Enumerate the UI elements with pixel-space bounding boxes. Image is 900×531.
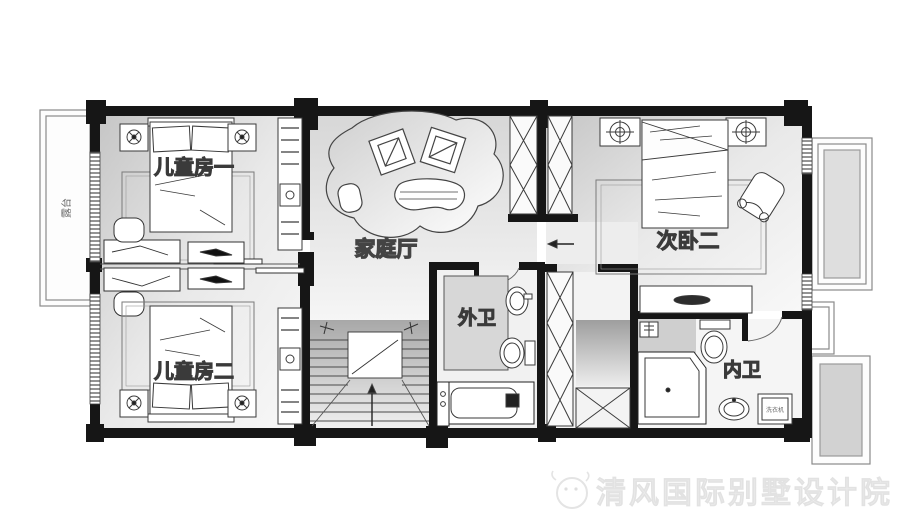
pillow: [191, 383, 229, 409]
window-right-2: [802, 274, 812, 310]
washer-label: 洗衣机: [766, 406, 784, 414]
washbasin-icon: [640, 322, 658, 337]
room-label-balcony-left: 露台: [60, 198, 73, 218]
window-left-1: [90, 152, 100, 262]
room-label-outer-bath: 外卫: [458, 306, 496, 329]
nightstand-lamp-icon: [120, 390, 148, 417]
corridor-floor: [546, 222, 638, 264]
outer-bathroom: 外卫: [437, 276, 535, 426]
desk: [104, 268, 180, 291]
wardrobe-icon: [278, 308, 302, 424]
nightstand-lamp-icon: [120, 124, 148, 151]
room-label-family-hall: 家庭厅: [355, 237, 418, 261]
corner-tub-icon: [638, 352, 706, 424]
room-label-kids2: 儿童房二: [153, 359, 234, 383]
nightstand-lamp-icon: [228, 390, 256, 417]
watermark-text: 清风国际别墅设计院: [596, 476, 893, 511]
dresser-icon: [640, 286, 752, 313]
chair-icon: [114, 292, 144, 316]
window-right-1: [802, 138, 812, 174]
pillow: [152, 383, 190, 409]
floor-plan-page: 儿童房一: [0, 0, 900, 531]
room-label-kids1: 儿童房一: [153, 155, 234, 179]
closet-icon: [548, 116, 572, 214]
closet-corridor-shade: [576, 320, 630, 386]
balcony-right-bottom: [812, 356, 870, 464]
window-left-2: [90, 294, 100, 404]
balcony-right-top: [812, 138, 872, 290]
coffee-table-icon: [395, 179, 465, 210]
room-label-bedroom2: 次卧二: [657, 229, 720, 253]
ceiling-lamp-icon: [600, 118, 640, 146]
ceiling-lamp-icon: [726, 118, 766, 146]
bathtub-icon: [437, 382, 534, 426]
pillow: [152, 126, 190, 152]
nightstand-lamp-icon: [228, 124, 256, 151]
wardrobe-icon: [278, 118, 302, 250]
floor-plan-drawing: 儿童房一: [0, 0, 900, 531]
watermark-logo-icon: [552, 471, 589, 508]
chair-icon: [114, 218, 144, 242]
room-label-inner-bath: 内卫: [723, 358, 761, 381]
watermark: 清风国际别墅设计院: [552, 471, 893, 511]
door-leaf: [742, 311, 748, 341]
washing-machine-icon: 洗衣机: [758, 394, 792, 424]
closet-icon: [510, 116, 537, 214]
pillow: [191, 126, 229, 152]
bed-icon: [642, 120, 728, 228]
toilet-icon: [500, 338, 535, 368]
column: [86, 424, 104, 442]
sink-icon: [719, 398, 749, 420]
closet-icon: [547, 272, 573, 426]
